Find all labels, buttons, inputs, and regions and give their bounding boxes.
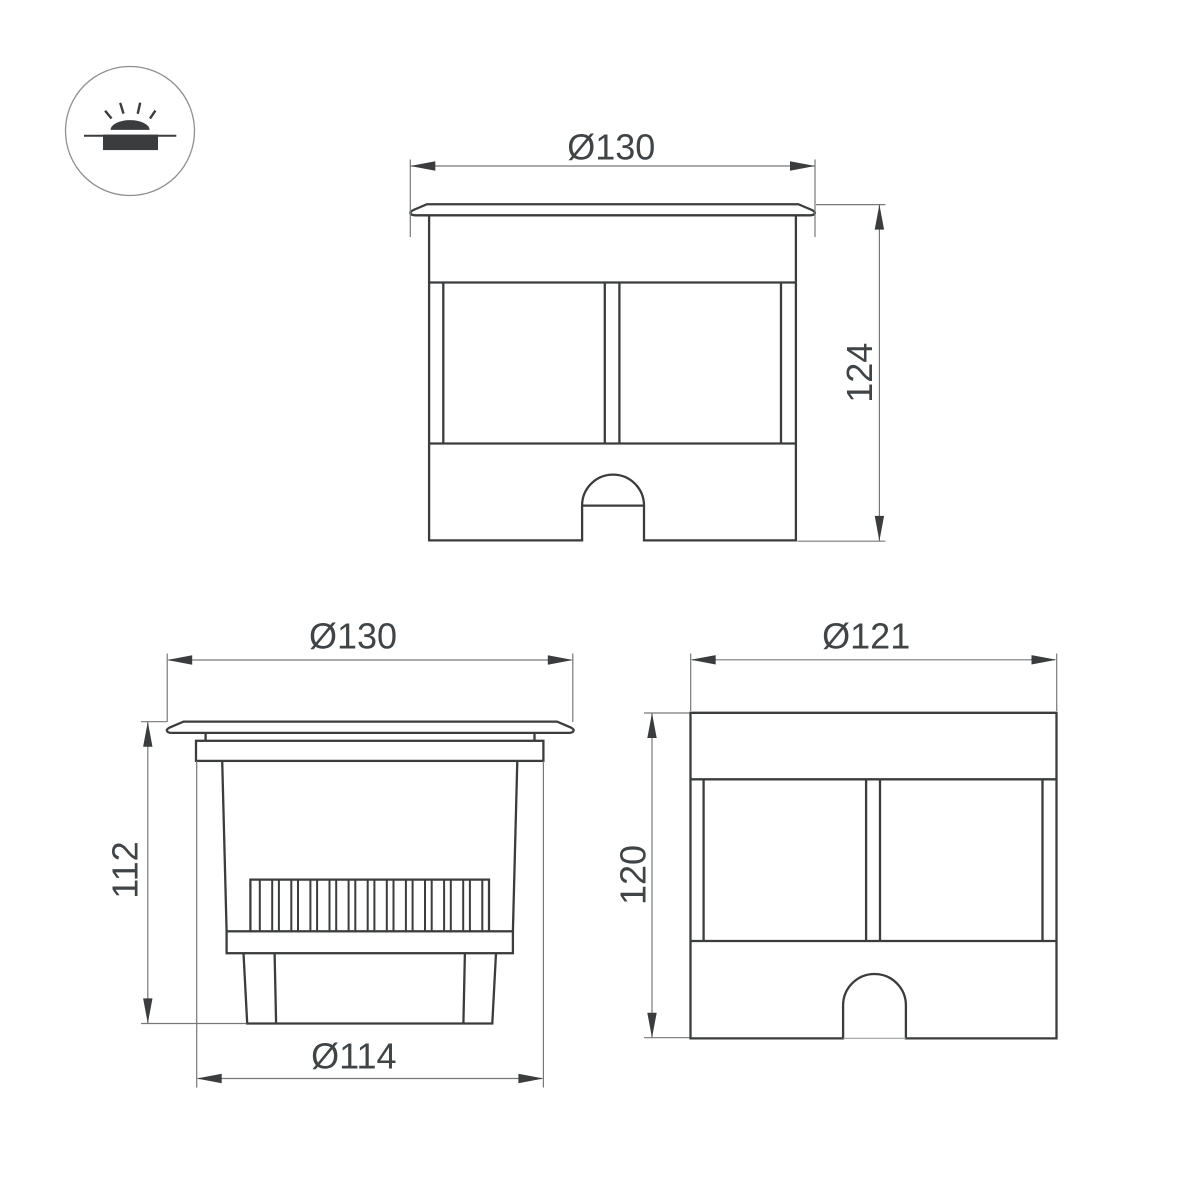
- svg-text:Ø130: Ø130: [567, 126, 655, 167]
- svg-text:Ø114: Ø114: [311, 1036, 396, 1077]
- svg-text:Ø130: Ø130: [309, 615, 397, 656]
- svg-text:Ø121: Ø121: [822, 616, 910, 657]
- svg-text:120: 120: [613, 845, 654, 905]
- svg-text:112: 112: [105, 841, 146, 898]
- svg-text:124: 124: [839, 343, 880, 403]
